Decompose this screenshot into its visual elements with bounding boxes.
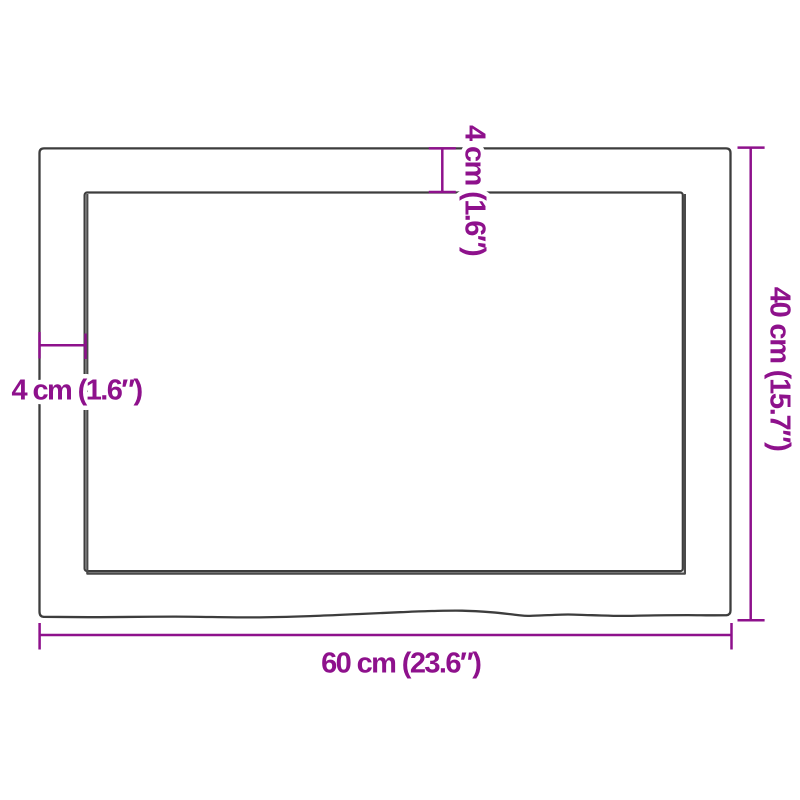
svg-text:40 cm (15.7″): 40 cm (15.7″) [763, 287, 795, 451]
svg-text:60 cm (23.6″): 60 cm (23.6″) [321, 648, 481, 680]
svg-text:4 cm (1.6″): 4 cm (1.6″) [459, 125, 491, 256]
svg-text:4 cm (1.6″): 4 cm (1.6″) [12, 375, 143, 407]
